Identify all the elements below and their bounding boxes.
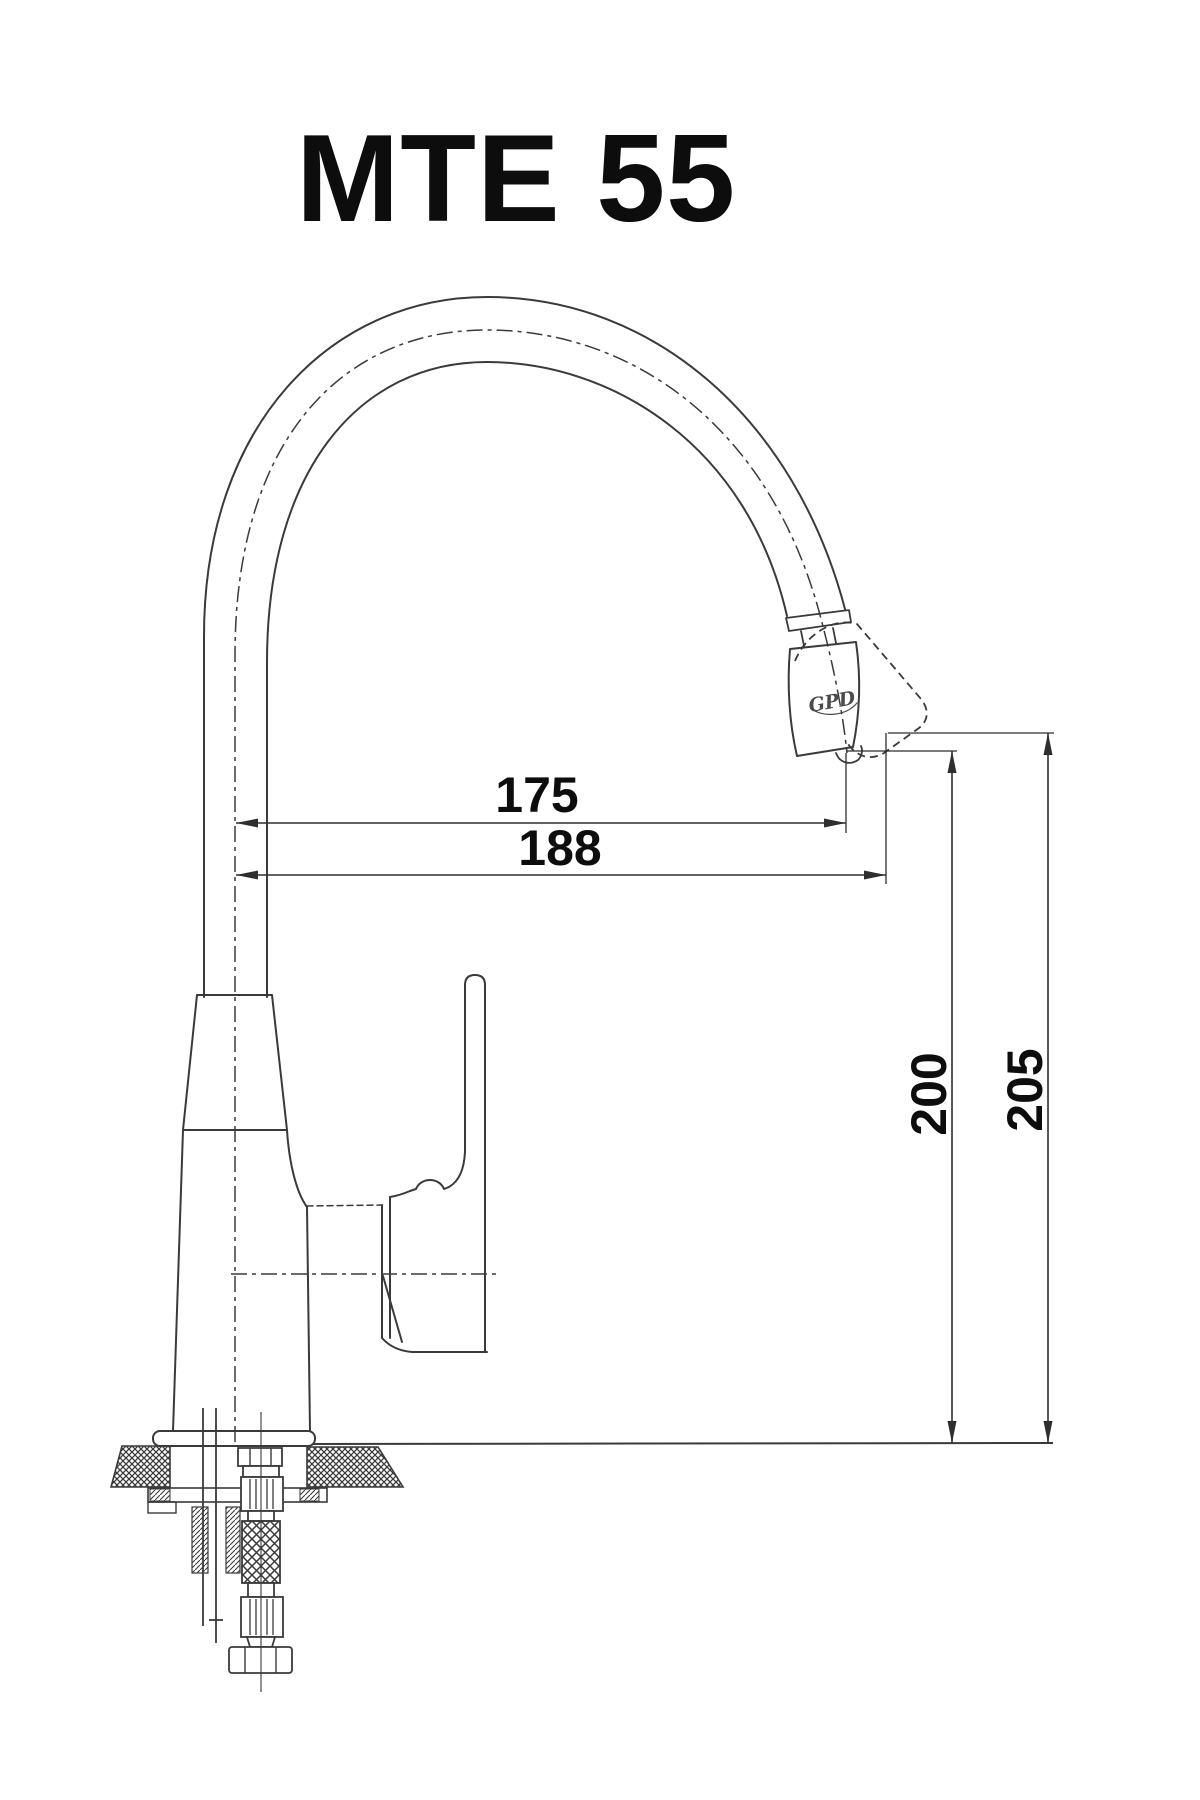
base-flange [153, 1431, 315, 1446]
handle-underside [390, 1152, 465, 1197]
handle-lever [390, 975, 485, 1352]
body-right-edge [287, 1130, 310, 1431]
handle-blade [465, 975, 485, 1352]
hose-ribbed-lower [241, 1597, 283, 1637]
threaded-stud-left [192, 1507, 208, 1573]
spout-centerline [235, 330, 847, 1442]
hose-ribbed-upper [241, 1477, 283, 1511]
body-hidden-bottom-edge [307, 1205, 382, 1206]
arrowhead-188-right [864, 871, 886, 880]
countertop-left-cut [111, 1446, 170, 1487]
arrowhead-205-top [1044, 733, 1053, 755]
centerlines [231, 330, 847, 1442]
dimension-label-205: 205 [997, 1048, 1053, 1131]
arrowhead-175-right [824, 819, 846, 828]
dimension-label-175: 175 [495, 767, 578, 823]
arrowhead-188-left [236, 871, 258, 880]
washer-hatched-end-left [150, 1489, 170, 1501]
spout-inner-curve [267, 362, 787, 997]
hose-top-hex-nut [238, 1448, 282, 1466]
spout-outer-curve [204, 297, 845, 997]
spout-collar [786, 610, 851, 631]
faucet-dimension-diagram: MTE 55 175 188 200 205 GPD [0, 0, 1200, 1800]
dimension-label-188: 188 [518, 820, 601, 876]
drawing-title: MTE 55 [296, 110, 736, 248]
arrowhead-205-bottom [1044, 1421, 1053, 1443]
arrowhead-175-left [236, 819, 258, 828]
technical-drawing-sheet: MTE 55 175 188 200 205 GPD [0, 0, 1200, 1800]
dimension-label-200: 200 [901, 1052, 957, 1135]
arrowhead-200-bottom [948, 1421, 957, 1443]
countertop-right-cut [307, 1447, 403, 1487]
housing-slant-edge [383, 1276, 402, 1342]
mounting-nut-step [148, 1502, 176, 1513]
arrowhead-200-top [948, 751, 957, 773]
housing-foot [382, 1338, 487, 1352]
body-left-edge [173, 1130, 183, 1431]
mounting-hardware [148, 1488, 327, 1573]
counter-surface-reference-line [307, 1443, 1053, 1444]
threaded-stud-right [226, 1507, 240, 1573]
faucet-body [173, 297, 845, 1431]
washer-hatched-end-right [300, 1489, 319, 1501]
spray-head-stem [801, 628, 836, 646]
